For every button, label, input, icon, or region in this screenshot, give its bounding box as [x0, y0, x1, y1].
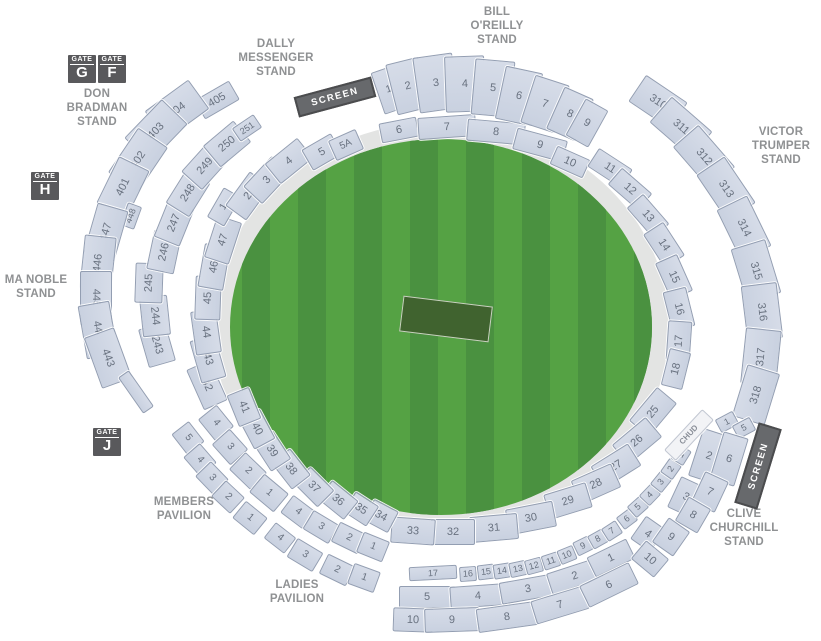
gate-letter: G [76, 65, 88, 82]
gate-letter: H [40, 182, 51, 199]
section-south1-5[interactable]: 5 [399, 586, 455, 608]
section-walk-17[interactable]: 17 [409, 565, 458, 581]
section-south2-9[interactable]: 9 [424, 607, 480, 633]
gate-f-marker: GATEF [98, 55, 126, 83]
stand-label-victor-trumper: VICTORTRUMPERSTAND [752, 126, 810, 167]
gate-letter: J [103, 438, 111, 455]
stand-label-don-bradman: DONBRADMANSTAND [67, 88, 128, 129]
stand-label-bill-oreilly: BILLO'REILLYSTAND [470, 6, 523, 47]
gate-letter: F [107, 65, 116, 82]
section-inner-33[interactable]: 33 [390, 516, 436, 545]
section-walk-16[interactable]: 16 [459, 566, 477, 582]
section-inner-32[interactable]: 32 [431, 519, 475, 545]
stand-label-members-pavilion: MEMBERSPAVILION [154, 496, 214, 524]
stadium-seat-map: 4054044034024014484474464454444432432442… [0, 0, 821, 641]
stand-label-dally-messenger: DALLYMESSENGERSTAND [238, 38, 313, 79]
stand-label-clive-churchill: CLIVECHURCHILLSTAND [710, 508, 779, 549]
stand-label-ma-noble: MA NOBLESTAND [5, 274, 68, 302]
gate-h-marker: GATEH [31, 172, 59, 200]
gate-j-marker: GATEJ [93, 428, 121, 456]
stand-label-ladies-pavilion: LADIESPAVILION [270, 579, 324, 607]
gate-g-marker: GATEG [68, 55, 96, 83]
section-inner-31[interactable]: 31 [469, 513, 519, 543]
